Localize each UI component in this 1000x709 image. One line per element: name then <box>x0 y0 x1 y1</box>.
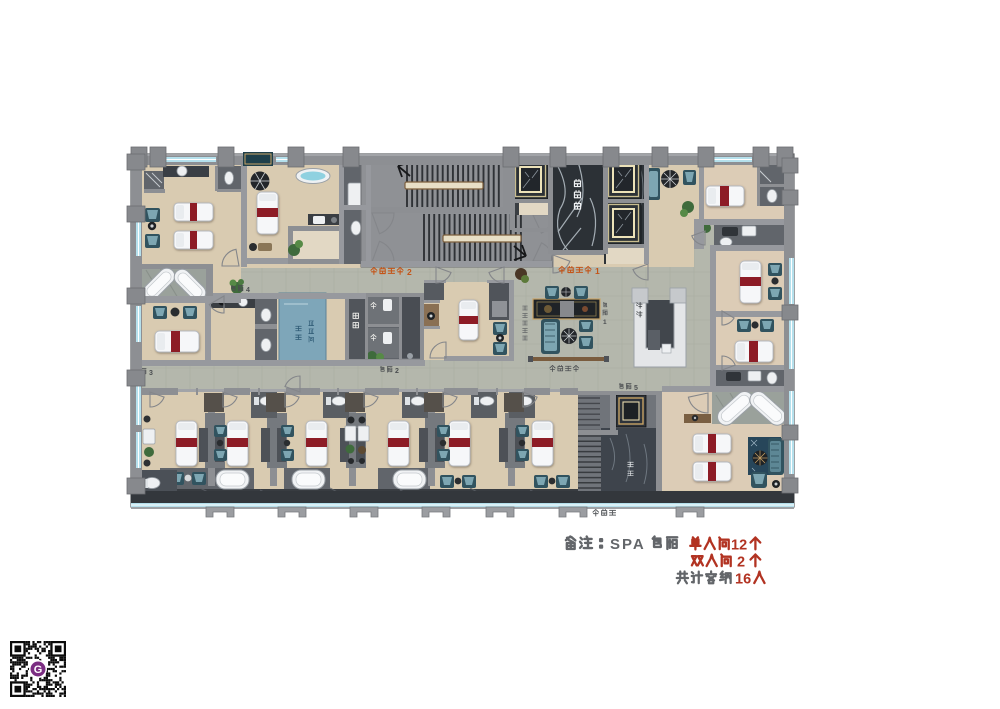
svg-text:3: 3 <box>149 370 153 377</box>
svg-text:G: G <box>34 664 43 676</box>
svg-text:2: 2 <box>395 368 399 375</box>
svg-text:4: 4 <box>246 287 250 294</box>
svg-text:16: 16 <box>735 572 751 588</box>
svg-text:5: 5 <box>634 385 638 392</box>
svg-text:2: 2 <box>737 555 745 571</box>
svg-text:SPA: SPA <box>610 536 646 553</box>
svg-text:1: 1 <box>603 319 607 326</box>
svg-text:1: 1 <box>595 266 600 276</box>
svg-text:2: 2 <box>407 267 412 277</box>
svg-text:12: 12 <box>731 538 747 554</box>
